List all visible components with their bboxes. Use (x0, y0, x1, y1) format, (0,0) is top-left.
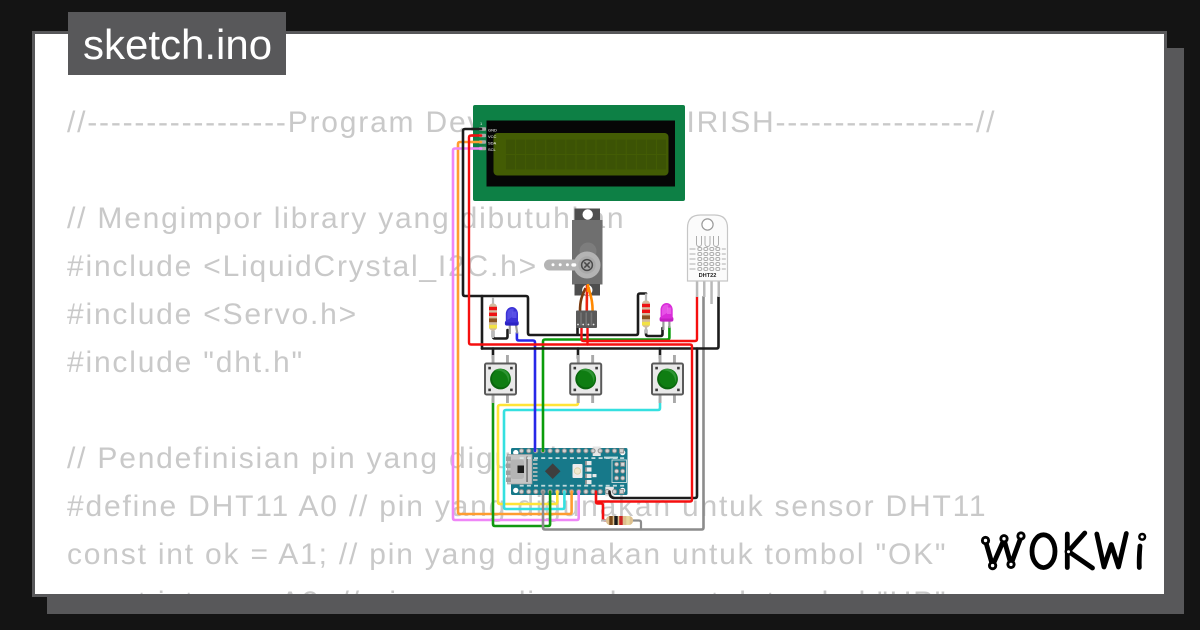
svg-text:SCL: SCL (488, 147, 497, 152)
svg-text:GND: GND (488, 128, 497, 133)
svg-text:SDA: SDA (488, 141, 497, 146)
svg-text:DHT22: DHT22 (699, 273, 717, 279)
svg-text:VCC: VCC (488, 134, 497, 139)
